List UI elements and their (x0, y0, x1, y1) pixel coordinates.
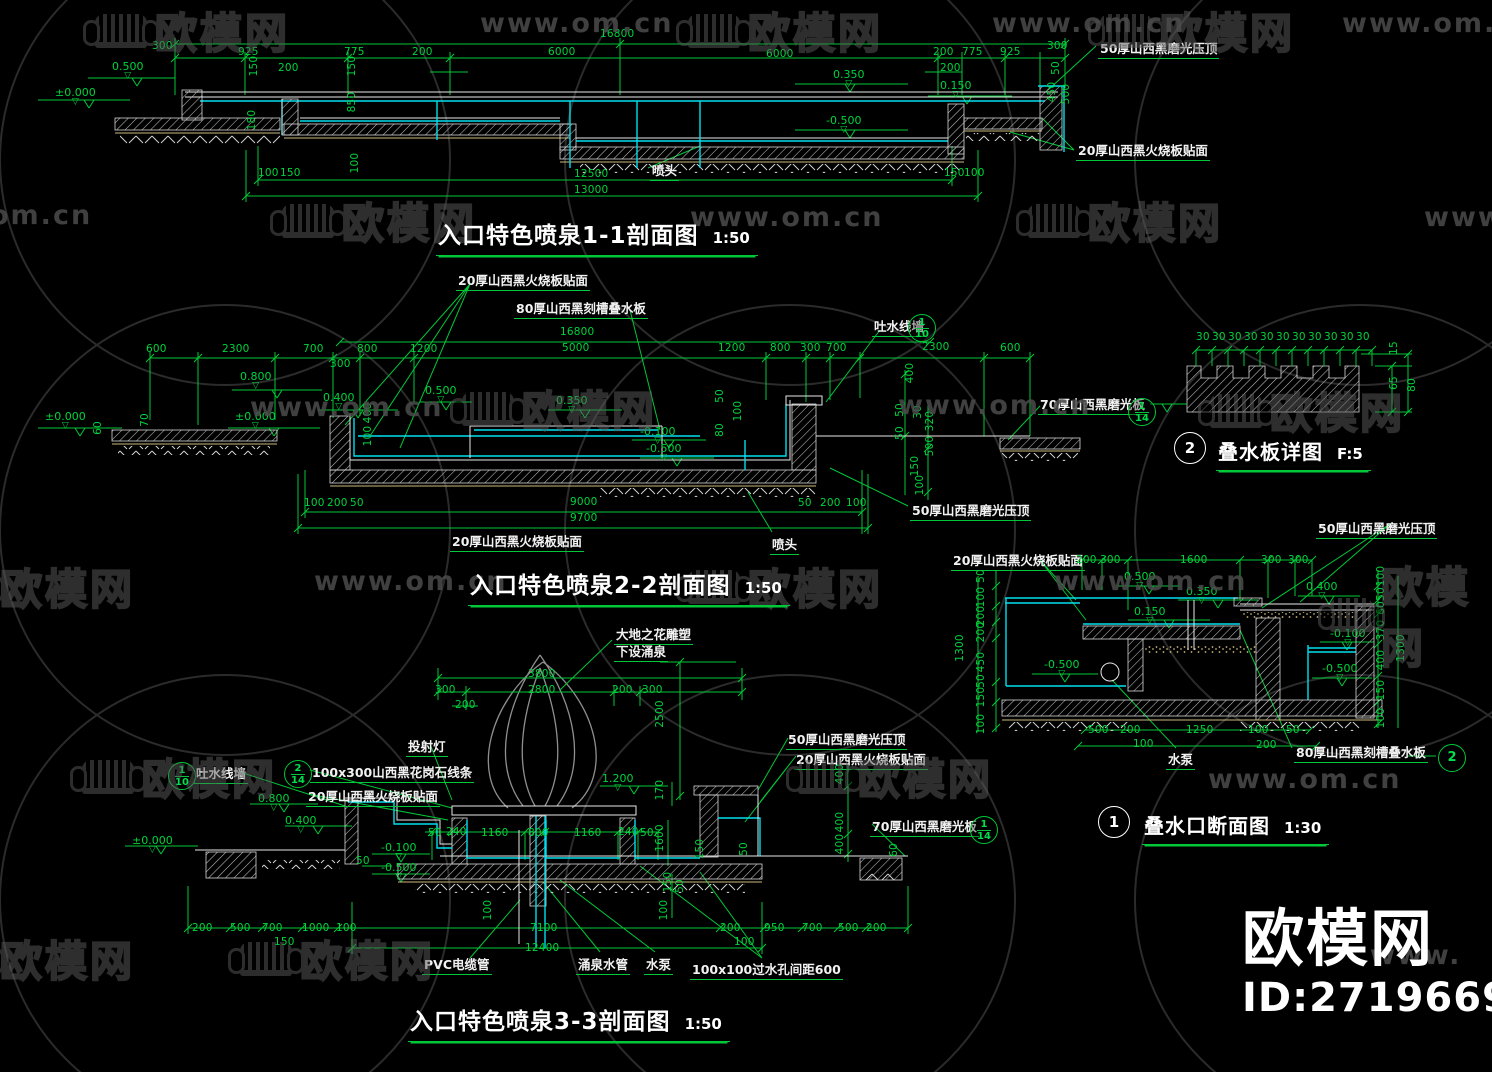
watermark-url: www. (1424, 202, 1492, 233)
watermark-url: www.om.cn (1208, 764, 1402, 795)
watermark-url: om.cn (0, 200, 92, 231)
dimension-label: 100 (1248, 724, 1269, 736)
detail-callout: 1 (1098, 806, 1130, 838)
dimension-label: 200 (412, 46, 433, 58)
dimension-label: 300 (642, 684, 663, 696)
watermark-site-name: 欧模网 (0, 556, 135, 617)
watermark-site-name: 欧模网 (1270, 380, 1405, 441)
dimension-label: 100 (482, 900, 494, 921)
drawing-title-section-3-3: 入口特色喷泉3-3剖面图 1:50 (408, 1002, 730, 1042)
dimension-label: 400 (834, 834, 846, 855)
material-label: 涌泉水管 (576, 954, 630, 975)
level-label: 0.500 (1124, 570, 1156, 590)
dimension-label: 170 (654, 780, 666, 801)
dimension-label: 50 (894, 403, 906, 417)
dimension-label: 300 (435, 684, 456, 696)
watermark-url: www.om.cn (992, 8, 1186, 39)
dimension-label: 12400 (525, 942, 559, 954)
material-label: 50厚山西黑磨光压顶 (910, 500, 1031, 521)
asset-id: ID:2719669 (1242, 978, 1492, 1018)
dimension-label: 100 (734, 936, 755, 948)
watermark-logo: 欧模网 (0, 556, 135, 617)
level-label: 0.150 (940, 79, 972, 99)
title-scale: 1:50 (745, 579, 782, 597)
detail-callout: 114 (1128, 398, 1156, 426)
level-label: 0.400 (1306, 580, 1338, 600)
dimension-label: 30 (1244, 331, 1258, 343)
dimension-label: 200 (455, 699, 476, 711)
title-text: 叠水板详图 (1218, 436, 1323, 465)
dimension-label: 2300 (222, 343, 250, 355)
sofa-watermark-icon (240, 942, 292, 976)
dimension-label: 30 (1196, 331, 1210, 343)
dimension-label: 5000 (562, 342, 590, 354)
dimension-label: 300 (1261, 554, 1282, 566)
title-text: 入口特色喷泉1-1剖面图 (438, 216, 699, 250)
dimension-label: 400 (834, 812, 846, 833)
material-label: 喷头 (770, 534, 799, 555)
level-label: ±0.000 (45, 410, 86, 430)
dimension-label: 400 (362, 403, 374, 424)
title-text: 叠水口断面图 (1144, 810, 1270, 839)
dimension-label: 100 (349, 153, 361, 174)
sofa-watermark-icon (1330, 598, 1373, 632)
dimension-label: 50 (975, 674, 987, 688)
watermark-url: www.om.cn (898, 390, 1092, 421)
material-label: 吐水线墙 (194, 763, 248, 784)
dimension-label: 775 (962, 46, 983, 58)
material-label: 20厚山西黑火烧板贴面 (456, 270, 590, 291)
watermark-site-name: 欧模网 (522, 378, 657, 439)
dimension-label: 2300 (922, 341, 950, 353)
level-label: -0.500 (1322, 662, 1357, 682)
material-label: 20厚山西黑火烧板贴面 (794, 749, 928, 770)
dimension-label: 950 (764, 922, 785, 934)
dimension-label: 1160 (574, 827, 602, 839)
level-label: -0.500 (646, 442, 681, 462)
level-label: -0.100 (1330, 627, 1365, 647)
dimension-label: 775 (344, 46, 365, 58)
level-label: -0.500 (381, 861, 416, 881)
dimension-label: 100 (658, 900, 670, 921)
dimension-label: 200 (1076, 554, 1097, 566)
dimension-label: 150 (662, 872, 674, 893)
sofa-watermark-icon (1028, 204, 1080, 238)
dimension-label: 12500 (574, 168, 608, 180)
dimension-label: 700 (826, 342, 847, 354)
dimension-label: 30 (1308, 331, 1322, 343)
dimension-label: 150 (248, 56, 260, 77)
dimension-label: 50 (350, 497, 364, 509)
dimension-label: 180 (246, 110, 258, 131)
dimension-label: 50 (356, 855, 370, 867)
dimension-label: 200 (933, 46, 954, 58)
dimension-label: 240 (446, 826, 467, 838)
dimension-label: 30 (1212, 331, 1226, 343)
dimension-label: 50 (640, 827, 654, 839)
level-label: ±0.000 (132, 834, 173, 854)
dimension-label: 240 (618, 826, 639, 838)
dimension-label: 800 (770, 342, 791, 354)
dimension-label: 500 (838, 922, 859, 934)
dimension-label: 450 (1046, 82, 1058, 103)
dimension-label: 2800 (528, 684, 556, 696)
sofa-watermark-icon (1100, 14, 1152, 48)
sofa-watermark-icon (95, 14, 147, 48)
material-label: 100x300山西黑花岗石线条 (310, 762, 474, 783)
detail-callout: 2 (1174, 432, 1206, 464)
level-label: -0.100 (640, 425, 675, 445)
dimension-label: 100 (1133, 738, 1154, 750)
dimension-label: 30 (1276, 331, 1290, 343)
watermark-site-name: 欧模网 (1088, 190, 1223, 251)
dimension-label: 700 (303, 343, 324, 355)
level-label: 0.800 (240, 370, 272, 390)
dimension-label: 80 (1406, 378, 1418, 392)
watermark-site-name: 欧模网 (155, 0, 290, 61)
detail-callout: 110 (168, 762, 196, 790)
material-label: 50厚山西黑磨光压顶 (1098, 38, 1219, 59)
dimension-label: 200 (975, 606, 987, 627)
material-label: 80厚山西黑刻槽叠水板 (1294, 742, 1428, 763)
dimension-label: 100 (846, 497, 867, 509)
level-label: 0.350 (833, 68, 865, 88)
dimension-label: 100 (914, 475, 926, 496)
dimension-label: 925 (238, 46, 259, 58)
dimension-label: 1300 (954, 634, 966, 662)
material-label: 70厚山西黑磨光板 (870, 816, 979, 837)
dimension-label: 60 (1375, 601, 1387, 615)
sofa-watermark-icon (462, 392, 514, 426)
dimension-label: 65 (1388, 376, 1400, 390)
level-label: -0.500 (826, 114, 861, 134)
dimension-label: 700 (802, 922, 823, 934)
watermark-logo: 欧模网 (1210, 380, 1405, 441)
level-label: 0.150 (1134, 605, 1166, 625)
watermark-site-name: 欧模网 (1160, 0, 1295, 61)
dimension-label: 50 (798, 497, 812, 509)
dimension-label: 300 (1100, 554, 1121, 566)
dimension-label: 30 (1340, 331, 1354, 343)
level-label: 0.400 (323, 391, 355, 411)
level-label: ±0.000 (55, 86, 96, 106)
dimension-label: 150 (944, 167, 965, 179)
level-label: -0.100 (381, 841, 416, 861)
watermark-site-name: 欧模网 (748, 0, 883, 61)
dimension-label: 925 (1000, 46, 1021, 58)
drawing-title-stack-board: 叠水板详图 F:5 (1216, 436, 1371, 471)
dimension-label: 200 (940, 62, 961, 74)
dimension-label: 300 (152, 40, 173, 52)
dimension-label: 200 (1120, 724, 1141, 736)
dimension-label: 50 (714, 389, 726, 403)
dimension-label: 100 (304, 497, 325, 509)
watermark-logo: 欧模网 (1028, 190, 1223, 251)
material-label: 50厚山西黑磨光压顶 (1316, 518, 1437, 539)
level-label: 0.400 (285, 814, 317, 834)
watermark-logo: 欧模网 (0, 928, 135, 989)
level-label: 0.350 (556, 394, 588, 414)
material-label: 50厚山西黑磨光压顶 (786, 729, 907, 750)
watermark-url: www.om.cn (250, 392, 444, 423)
dimension-label: 1250 (1186, 724, 1214, 736)
dimension-label: 50 (738, 842, 750, 856)
level-label: 1.200 (602, 772, 634, 792)
drawing-title-section-1-1: 入口特色喷泉1-1剖面图 1:50 (436, 216, 758, 256)
watermark-site-name: 欧模网 (300, 928, 435, 989)
dimension-label: 50 (1286, 724, 1300, 736)
dimension-label: 16800 (600, 28, 634, 40)
dimension-label: 16800 (560, 326, 594, 338)
dimension-label: 1160 (481, 827, 509, 839)
dimension-label: 30 (1292, 331, 1306, 343)
dimension-label: 50 (975, 569, 987, 583)
dimension-label: 1600 (654, 824, 666, 852)
watermark-url: www.om.cn (1054, 566, 1248, 597)
dimension-label: 30 (1324, 331, 1338, 343)
dimension-label: 150 (274, 936, 295, 948)
watermark-logo: 欧模网 (462, 378, 657, 439)
dimension-label: 100 (1375, 566, 1387, 587)
dimension-label: 200 (192, 922, 213, 934)
dimension-label: 800 (528, 827, 549, 839)
material-label: 大地之花雕塑 (614, 624, 693, 645)
dimension-label: 30 (1260, 331, 1274, 343)
dimension-label: 9000 (570, 496, 598, 508)
dimension-label: 200 (1256, 739, 1277, 751)
dimension-label: 50 (1375, 587, 1387, 601)
title-scale: 1:50 (685, 1015, 722, 1033)
sofa-watermark-icon (282, 204, 334, 238)
watermark-logo: 欧模网 (688, 0, 883, 61)
dimension-label: 6000 (766, 48, 794, 60)
dimension-label: 400 (904, 363, 916, 384)
dimension-label: 600 (1000, 342, 1021, 354)
title-text: 入口特色喷泉2-2剖面图 (470, 566, 731, 600)
detail-callout: 2 (1438, 744, 1466, 772)
dimension-label: 200 (720, 922, 741, 934)
watermark-site-name: 欧模网 (1381, 554, 1492, 676)
sofa-watermark-icon (1210, 394, 1262, 428)
watermark-logo: 欧模网 (240, 928, 435, 989)
detail-callout: 214 (284, 760, 312, 788)
dimension-label: 700 (262, 922, 283, 934)
material-label: 投射灯 (406, 736, 448, 757)
level-label: -0.500 (1044, 658, 1079, 678)
dimension-label: 450 (975, 652, 987, 673)
dimension-label: 1300 (1395, 634, 1407, 662)
dimension-label: 500 (1060, 84, 1072, 105)
level-label: 0.500 (112, 60, 144, 80)
drawing-title-stack-outlet: 叠水口断面图 1:30 (1142, 810, 1329, 845)
dimension-label: 850 (346, 92, 358, 113)
dimension-label: 500 (230, 922, 251, 934)
dimension-label: 100 (258, 167, 279, 179)
dimension-label: 600 (146, 343, 167, 355)
dimension-label: 400 (834, 764, 846, 785)
dimension-label: 9700 (570, 512, 598, 524)
dimension-label: 370 (1375, 620, 1387, 641)
dimension-label: 200 (975, 622, 987, 643)
dimension-label: 1200 (718, 342, 746, 354)
dimension-label: 100 (975, 587, 987, 608)
dimension-label: 320 (924, 411, 936, 432)
sofa-watermark-icon (798, 760, 850, 794)
sofa-watermark-icon (688, 14, 740, 48)
dimension-label: 100 (362, 426, 374, 447)
dimension-label: 100 (1375, 708, 1387, 729)
dimension-label: 150 (975, 687, 987, 708)
dimension-label: 3800 (528, 668, 556, 680)
dimension-label: 100 (975, 714, 987, 735)
dimension-label: 150 (346, 56, 358, 77)
dimension-label: 150 (280, 167, 301, 179)
dimension-label: 1000 (302, 922, 330, 934)
dimension-label: 6000 (548, 46, 576, 58)
material-label: 20厚山西黑火烧板贴面 (1076, 140, 1210, 161)
dimension-label: 50 (428, 827, 442, 839)
dimension-label: 30 (912, 405, 924, 419)
cad-drawing-canvas: 1680030092577520060006000200775925300200… (0, 0, 1492, 1072)
material-label: 20厚山西黑火烧板贴面 (951, 550, 1085, 571)
dimension-label: 100 (336, 922, 357, 934)
material-label: 下设涌泉 (614, 641, 668, 662)
dimension-label: 800 (357, 343, 378, 355)
dimension-label: 7100 (530, 922, 558, 934)
dimension-label: 13000 (574, 184, 608, 196)
dimension-label: 150 (909, 456, 921, 477)
dimension-label: 100 (964, 167, 985, 179)
dimension-label: 15 (1388, 341, 1400, 355)
detail-callout: 110 (908, 314, 936, 342)
dimension-label: 60 (92, 421, 104, 435)
dimension-label: 1600 (1180, 554, 1208, 566)
site-logo-text: 欧模网 (1242, 908, 1492, 970)
dimension-label: 2500 (654, 700, 666, 728)
watermark-logo: 欧模网 (1100, 0, 1295, 61)
dimension-label: 200 (820, 497, 841, 509)
dimension-label: 50 (1050, 61, 1062, 75)
dimension-label: 150 (1375, 680, 1387, 701)
watermark-url: www.om.cn (480, 8, 674, 39)
dimension-label: 200 (866, 922, 887, 934)
dimension-label: 150 (694, 839, 706, 860)
title-scale: F:5 (1337, 445, 1363, 463)
dimension-label: 70 (139, 413, 151, 427)
dimension-label: 300 (1047, 40, 1068, 52)
dimension-label: 400 (1375, 650, 1387, 671)
dimension-label: 200 (278, 62, 299, 74)
material-label: 20厚山西黑火烧板贴面 (306, 786, 440, 807)
material-label: 水泵 (1166, 749, 1195, 770)
title-scale: 1:50 (713, 229, 750, 247)
watermark-logo: 欧模网 (95, 0, 290, 61)
dimension-label: 30 (1228, 331, 1242, 343)
material-label: 80厚山西黑刻槽叠水板 (514, 298, 648, 319)
title-scale: 1:30 (1284, 819, 1321, 837)
dimension-label: 300 (330, 358, 351, 370)
site-brand: 欧模网 ID:2719669 (1242, 908, 1492, 1018)
dimension-label: 200 (612, 684, 633, 696)
detail-callout: 114 (970, 816, 998, 844)
watermark-logo: 欧模网 (1330, 554, 1492, 676)
dimension-label: 50 (894, 426, 906, 440)
material-label: PVC电缆管 (422, 954, 492, 975)
dimension-label: 60 (888, 843, 900, 857)
dimension-label: 50 (674, 879, 686, 893)
dimension-label: 80 (714, 423, 726, 437)
dimension-label: 500 (924, 436, 936, 457)
sofa-watermark-icon (82, 760, 134, 794)
dimension-label: 300 (1288, 554, 1309, 566)
dimension-label: 1200 (410, 343, 438, 355)
level-label: 0.800 (258, 792, 290, 812)
level-label: 0.500 (425, 384, 457, 404)
watermark-site-name: 欧模网 (0, 928, 135, 989)
material-label: 水泵 (644, 954, 673, 975)
dimension-label: 200 (327, 497, 348, 509)
watermark-site-name: 欧模网 (142, 746, 277, 807)
material-label: 100x100过水孔间距600 (690, 959, 843, 980)
dimension-label: 30 (1356, 331, 1370, 343)
watermark-logo: 欧模网 (798, 746, 993, 807)
material-label: 20厚山西黑火烧板贴面 (450, 531, 584, 552)
watermark-site-name: 欧模网 (858, 746, 993, 807)
drawing-title-section-2-2: 入口特色喷泉2-2剖面图 1:50 (468, 566, 790, 606)
watermark-url: www.om.cn (1342, 8, 1492, 39)
level-label: 0.350 (1186, 585, 1218, 605)
title-text: 入口特色喷泉3-3剖面图 (410, 1002, 671, 1036)
dimension-label: 500 (1088, 724, 1109, 736)
level-label: ±0.000 (235, 410, 276, 430)
material-label: 喷头 (650, 160, 679, 181)
dimension-label: 100 (732, 401, 744, 422)
dimension-label: 300 (800, 342, 821, 354)
